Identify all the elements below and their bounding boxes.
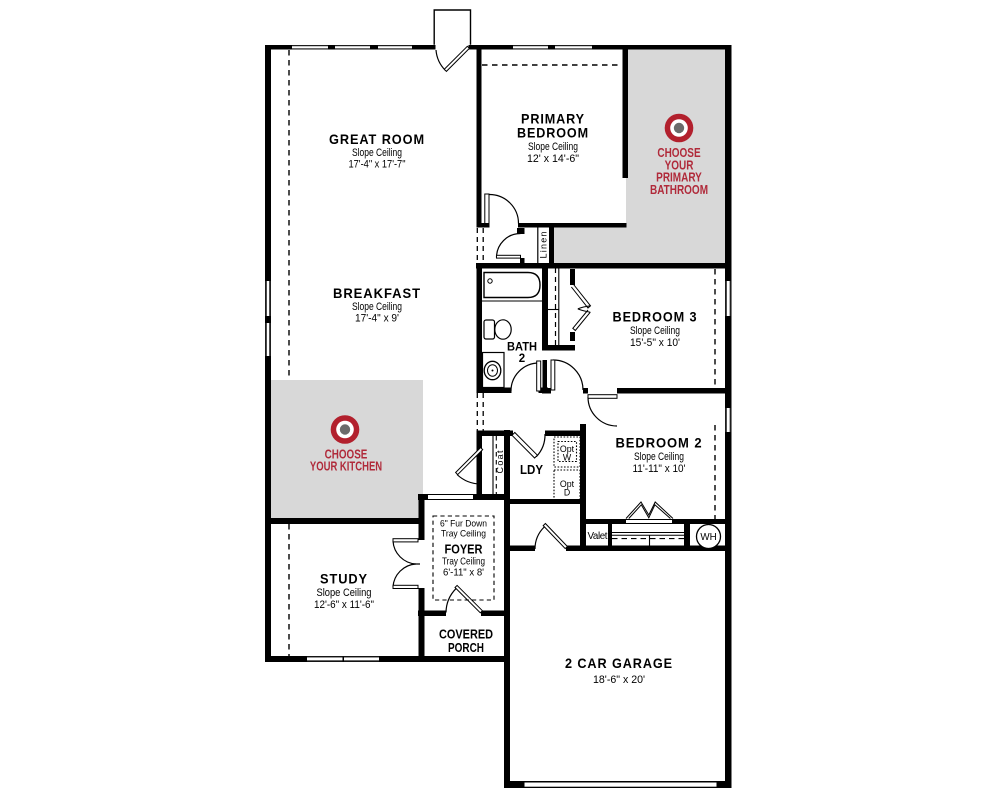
svg-text:CHOOSE: CHOOSE	[657, 147, 701, 160]
svg-text:Slope Ceiling: Slope Ceiling	[634, 451, 684, 463]
svg-text:COVERED: COVERED	[439, 628, 493, 642]
svg-text:2: 2	[519, 353, 525, 365]
svg-text:Coat: Coat	[495, 450, 505, 473]
svg-text:Slope Ceiling: Slope Ceiling	[352, 301, 402, 313]
svg-text:BREAKFAST: BREAKFAST	[333, 285, 421, 301]
svg-text:BATH: BATH	[507, 342, 537, 354]
svg-text:Slope Ceiling: Slope Ceiling	[317, 587, 372, 599]
svg-text:2 CAR GARAGE: 2 CAR GARAGE	[565, 655, 673, 671]
svg-text:GREAT ROOM: GREAT ROOM	[329, 131, 425, 147]
svg-text:Slope Ceiling: Slope Ceiling	[630, 325, 680, 337]
svg-text:Tray Ceiling: Tray Ceiling	[441, 529, 486, 540]
svg-text:WH: WH	[700, 532, 716, 543]
svg-text:Tray Ceiling: Tray Ceiling	[442, 557, 485, 568]
svg-text:BEDROOM: BEDROOM	[517, 125, 589, 141]
svg-text:D: D	[564, 488, 570, 498]
svg-text:11'-11" x 10': 11'-11" x 10'	[633, 463, 686, 475]
svg-text:Slope Ceiling: Slope Ceiling	[352, 147, 402, 159]
svg-text:17'-4" x 9': 17'-4" x 9'	[355, 313, 399, 325]
svg-text:6'-11" x 8': 6'-11" x 8'	[443, 568, 484, 579]
svg-text:PRIMARY: PRIMARY	[656, 172, 702, 185]
svg-text:15'-5" x 10': 15'-5" x 10'	[630, 337, 680, 349]
svg-text:12'-6" x 11'-6": 12'-6" x 11'-6"	[314, 599, 374, 611]
svg-text:BATHROOM: BATHROOM	[650, 184, 708, 197]
svg-text:12' x 14'-6": 12' x 14'-6"	[527, 153, 579, 165]
svg-text:LDY: LDY	[520, 463, 544, 477]
svg-text:Slope Ceiling: Slope Ceiling	[528, 141, 578, 153]
svg-text:Linen: Linen	[539, 232, 549, 259]
svg-text:FOYER: FOYER	[445, 543, 483, 557]
svg-text:17'-4" x 17'-7": 17'-4" x 17'-7"	[349, 159, 406, 171]
svg-text:YOUR KITCHEN: YOUR KITCHEN	[310, 460, 382, 474]
svg-text:BEDROOM 3: BEDROOM 3	[613, 309, 698, 325]
svg-text:18'-6" x 20': 18'-6" x 20'	[593, 674, 645, 686]
svg-text:BEDROOM 2: BEDROOM 2	[616, 435, 703, 451]
svg-text:Valet: Valet	[588, 531, 608, 542]
svg-text:STUDY: STUDY	[320, 571, 368, 587]
svg-text:PORCH: PORCH	[448, 641, 484, 655]
svg-text:YOUR: YOUR	[665, 159, 694, 172]
svg-text:W: W	[563, 453, 572, 463]
